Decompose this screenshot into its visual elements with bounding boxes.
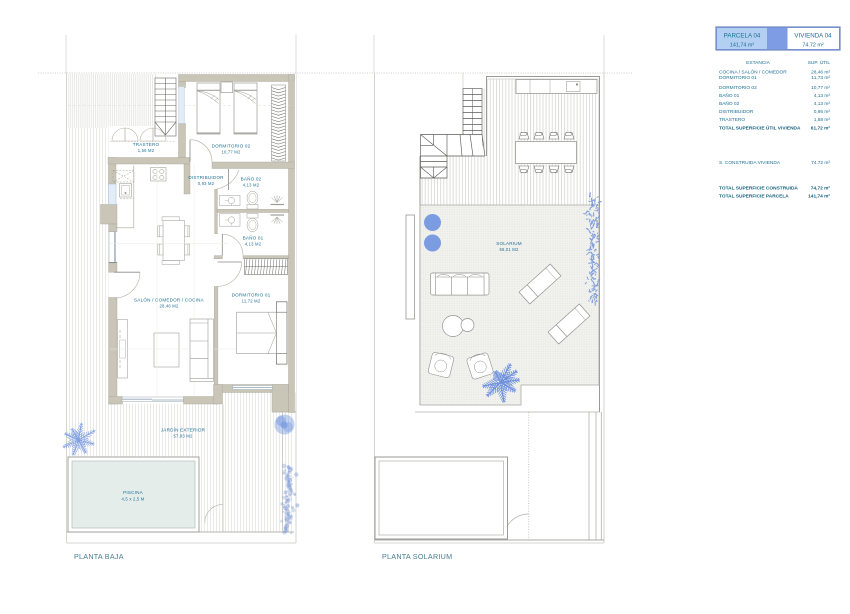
svg-text:BAÑO 02: BAÑO 02 (719, 100, 740, 107)
svg-text:0,95 m²: 0,95 m² (814, 109, 831, 115)
svg-text:57,83 M2: 57,83 M2 (173, 434, 193, 439)
svg-text:SALÓN / COMEDOR / COCINA: SALÓN / COMEDOR / COCINA (134, 297, 205, 303)
svg-text:TOTAL SUPERFICIE ÚTIL VIVIENDA: TOTAL SUPERFICIE ÚTIL VIVIENDA (719, 125, 801, 132)
svg-text:4,13 m²: 4,13 m² (814, 101, 831, 107)
svg-text:10,77 M2: 10,77 M2 (221, 150, 241, 155)
svg-text:DISTRIBUIDOR: DISTRIBUIDOR (188, 175, 224, 180)
svg-text:11,72 M2: 11,72 M2 (242, 299, 261, 304)
svg-text:PARCELA 04: PARCELA 04 (724, 33, 761, 40)
svg-text:BAÑO 01: BAÑO 01 (719, 92, 740, 99)
svg-text:TOTAL SUPERFICIE CONSTRUIDA: TOTAL SUPERFICIE CONSTRUIDA (719, 186, 798, 192)
svg-text:141,74 m²: 141,74 m² (808, 194, 830, 200)
svg-text:11,73 m²: 11,73 m² (811, 75, 830, 81)
svg-text:SUP. ÚTIL: SUP. ÚTIL (808, 59, 831, 66)
svg-text:PISCINA: PISCINA (123, 490, 144, 495)
svg-text:141,74 m²: 141,74 m² (730, 43, 754, 49)
svg-text:74,72 m²: 74,72 m² (811, 186, 831, 192)
svg-text:DORMITORIO 02: DORMITORIO 02 (719, 85, 757, 91)
svg-text:1,56 M2: 1,56 M2 (138, 148, 155, 153)
svg-text:DORMITORIO 02: DORMITORIO 02 (212, 144, 251, 149)
svg-text:PLANTA SOLARIUM: PLANTA SOLARIUM (382, 552, 452, 561)
svg-text:VIVIENDA 04: VIVIENDA 04 (794, 33, 832, 40)
svg-text:4,13 M2: 4,13 M2 (243, 183, 260, 188)
svg-text:JARDÍN EXTERIOR: JARDÍN EXTERIOR (161, 427, 206, 433)
svg-text:PLANTA BAJA: PLANTA BAJA (74, 552, 124, 561)
svg-text:4,5 x 2,5 M: 4,5 x 2,5 M (122, 497, 145, 502)
svg-text:1,58 m²: 1,58 m² (814, 117, 831, 123)
svg-text:61,72 m²: 61,72 m² (811, 126, 831, 132)
svg-text:TRASTERO: TRASTERO (133, 142, 160, 147)
svg-text:10,77 m²: 10,77 m² (811, 85, 830, 91)
svg-text:74.72 m²: 74.72 m² (802, 43, 823, 49)
svg-text:BAÑO 01: BAÑO 01 (243, 235, 264, 241)
svg-text:DISTRIBUIDOR: DISTRIBUIDOR (719, 109, 754, 115)
svg-text:TRASTERO: TRASTERO (719, 117, 745, 123)
svg-text:74.72 m²: 74.72 m² (811, 160, 830, 166)
svg-text:28,46 m²: 28,46 m² (811, 70, 830, 76)
svg-text:SOLARIUM: SOLARIUM (496, 241, 522, 246)
svg-text:4,13 M2: 4,13 M2 (245, 242, 262, 247)
svg-text:ESTANCIA: ESTANCIA (746, 60, 770, 66)
svg-text:66,01 M2: 66,01 M2 (499, 247, 519, 252)
svg-text:4,13 m²: 4,13 m² (814, 93, 831, 99)
svg-text:S. CONSTRUIDA VIVIENDA: S. CONSTRUIDA VIVIENDA (719, 160, 781, 166)
svg-text:COCINA / SALÓN / COMEDOR: COCINA / SALÓN / COMEDOR (719, 69, 787, 76)
svg-text:DORMITORIO 01: DORMITORIO 01 (719, 75, 757, 81)
svg-text:28,46 M2: 28,46 M2 (159, 304, 179, 309)
svg-text:0,93 M2: 0,93 M2 (198, 181, 215, 186)
svg-text:TOTAL SUPERFICIE PARCELA: TOTAL SUPERFICIE PARCELA (719, 194, 789, 200)
svg-text:BAÑO 02: BAÑO 02 (241, 176, 262, 182)
svg-text:DORMITORIO 01: DORMITORIO 01 (232, 293, 271, 298)
